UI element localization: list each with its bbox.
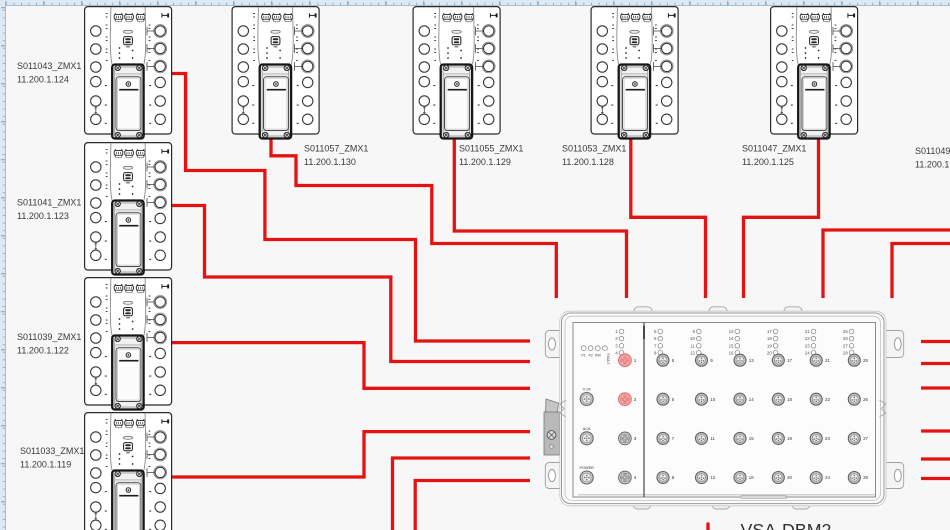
svg-text:14: 14 — [749, 397, 754, 402]
svg-text:19: 19 — [767, 343, 772, 348]
svg-text:1: 1 — [634, 358, 637, 363]
svg-text:17: 17 — [787, 358, 792, 363]
svg-text:27: 27 — [863, 436, 868, 441]
svg-text:4: 4 — [634, 475, 637, 480]
svg-text:27: 27 — [843, 343, 848, 348]
svg-text:13: 13 — [729, 329, 734, 334]
svg-text:21: 21 — [805, 329, 810, 334]
svg-text:14: 14 — [729, 336, 734, 341]
svg-text:V 24: V 24 — [583, 388, 591, 392]
svg-text:17: 17 — [767, 329, 772, 334]
svg-text:28: 28 — [843, 350, 848, 355]
svg-text:11: 11 — [710, 436, 715, 441]
svg-text:25: 25 — [863, 358, 868, 363]
svg-text:23: 23 — [805, 343, 810, 348]
svg-text:26: 26 — [843, 336, 848, 341]
svg-text:15: 15 — [729, 343, 734, 348]
svg-text:10: 10 — [710, 397, 715, 402]
svg-text:12: 12 — [690, 350, 695, 355]
svg-text:19: 19 — [787, 436, 792, 441]
svg-text:25: 25 — [843, 329, 848, 334]
svg-text:10: 10 — [690, 336, 695, 341]
svg-text:18: 18 — [787, 397, 792, 402]
svg-text:POWER: POWER — [580, 466, 595, 470]
svg-text:VSA-DBM2: VSA-DBM2 — [741, 520, 832, 530]
svg-text:12: 12 — [710, 475, 715, 480]
svg-text:21: 21 — [825, 358, 830, 363]
svg-text:2: 2 — [634, 397, 637, 402]
svg-text:24: 24 — [825, 475, 830, 480]
svg-text:28: 28 — [863, 475, 868, 480]
svg-text:15: 15 — [749, 436, 754, 441]
svg-text:13: 13 — [749, 358, 754, 363]
svg-text:16: 16 — [729, 350, 734, 355]
svg-text:26: 26 — [863, 397, 868, 402]
svg-text:20: 20 — [787, 475, 792, 480]
svg-text:ACA: ACA — [583, 427, 591, 431]
svg-text:16: 16 — [749, 475, 754, 480]
svg-text:22: 22 — [805, 336, 810, 341]
svg-text:RM: RM — [595, 354, 601, 358]
svg-text:P2: P2 — [588, 354, 592, 358]
svg-text:23: 23 — [825, 436, 830, 441]
svg-text:11: 11 — [690, 343, 695, 348]
svg-text:20: 20 — [767, 350, 772, 355]
svg-text:P1: P1 — [581, 354, 585, 358]
svg-text:24: 24 — [805, 350, 810, 355]
svg-text:18: 18 — [767, 336, 772, 341]
svg-text:3: 3 — [634, 436, 637, 441]
svg-text:22: 22 — [825, 397, 830, 402]
svg-text:FAULT: FAULT — [606, 354, 610, 366]
